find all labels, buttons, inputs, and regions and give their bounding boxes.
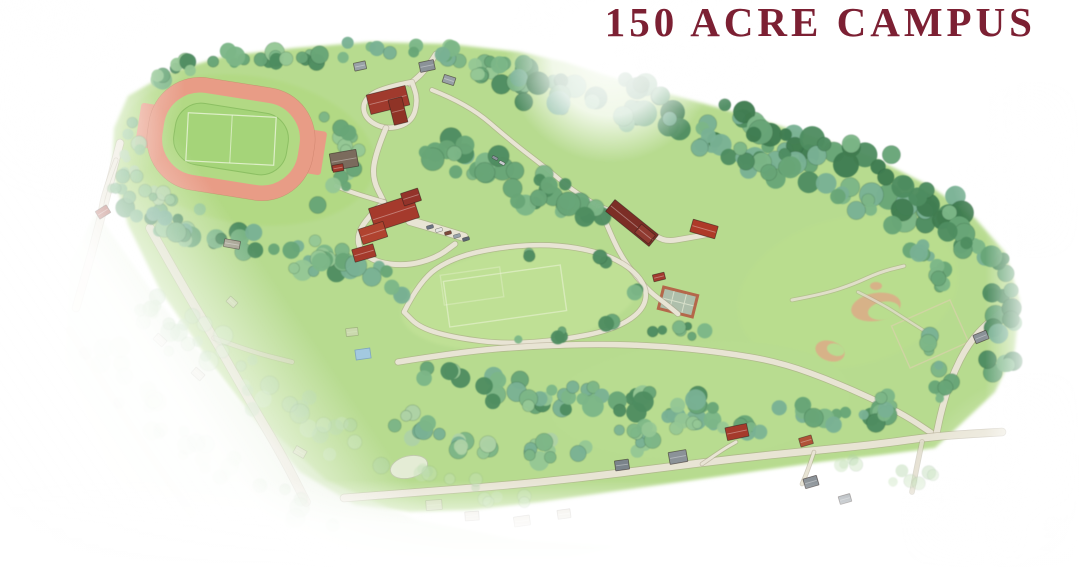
south-gray-house-2 [614,459,629,471]
track-house-red [332,164,344,173]
pale-house [513,515,530,527]
pale-house [557,509,571,520]
pitchers-mound [870,282,882,290]
south-gray-house-4 [838,494,852,505]
campus-title: 150 ACRE CAMPUS [605,0,1036,45]
south-gray-house-1 [668,450,688,465]
page-background: 150 ACRE CAMPUS [0,0,1080,568]
pale-house [346,327,359,336]
pale-house [426,499,443,510]
pale-house [465,511,480,521]
campus-map [0,0,1080,568]
trees-bottom-right-pale [834,454,939,490]
swimming-pool [355,348,371,360]
